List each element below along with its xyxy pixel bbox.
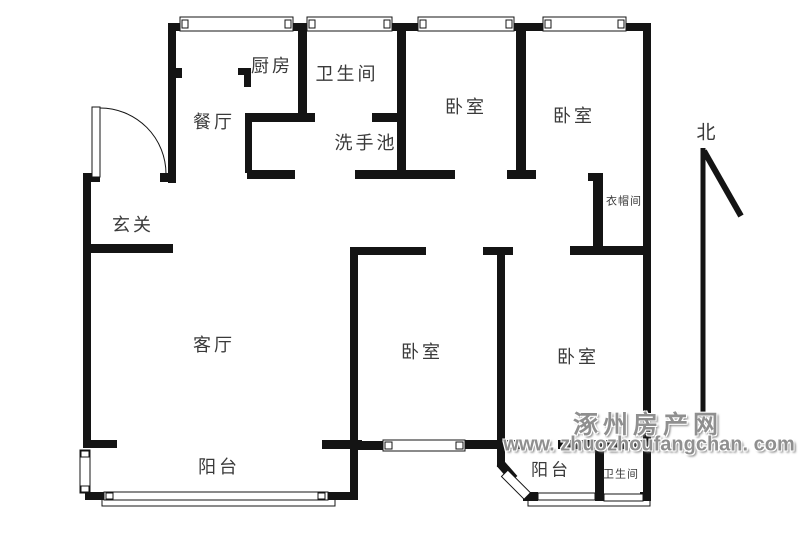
room-label-bedroom-top-left: 卧室 — [445, 98, 487, 116]
north-label: 北 — [696, 124, 715, 143]
floorplan-canvas: 厨房 卫生间 餐厅 洗手池 玄关 卧室 卧室 衣帽间 客厅 阳台 卧室 卧室 阳… — [0, 0, 800, 551]
windows-layer — [80, 17, 643, 501]
room-label-dining: 餐厅 — [193, 113, 235, 131]
walls-layer — [83, 23, 651, 501]
floorplan-drawing — [0, 0, 800, 551]
room-label-bedroom-bottom-middle: 卧室 — [401, 343, 443, 361]
entrance-door — [92, 107, 166, 177]
room-label-washbasin: 洗手池 — [335, 134, 398, 152]
room-label-living-room: 客厅 — [193, 336, 235, 354]
room-label-bathroom-top: 卫生间 — [316, 65, 379, 83]
watermark-site-url: www. zhuozhoufangchan. com — [503, 434, 794, 457]
room-label-kitchen: 厨房 — [251, 57, 293, 75]
room-label-balcony-main: 阳台 — [198, 458, 240, 476]
room-label-bathroom-bottom: 卫生间 — [603, 470, 639, 481]
room-label-cloakroom: 衣帽间 — [606, 197, 642, 208]
room-label-bedroom-bottom-right: 卧室 — [557, 348, 599, 366]
door-leaf-icon — [92, 107, 100, 177]
north-arrow-icon — [703, 148, 741, 425]
door-swing-arc-icon — [100, 108, 166, 174]
room-label-entry-hall: 玄关 — [112, 216, 154, 234]
room-label-bedroom-top-right: 卧室 — [553, 107, 595, 125]
room-label-balcony-small: 阳台 — [531, 462, 571, 479]
